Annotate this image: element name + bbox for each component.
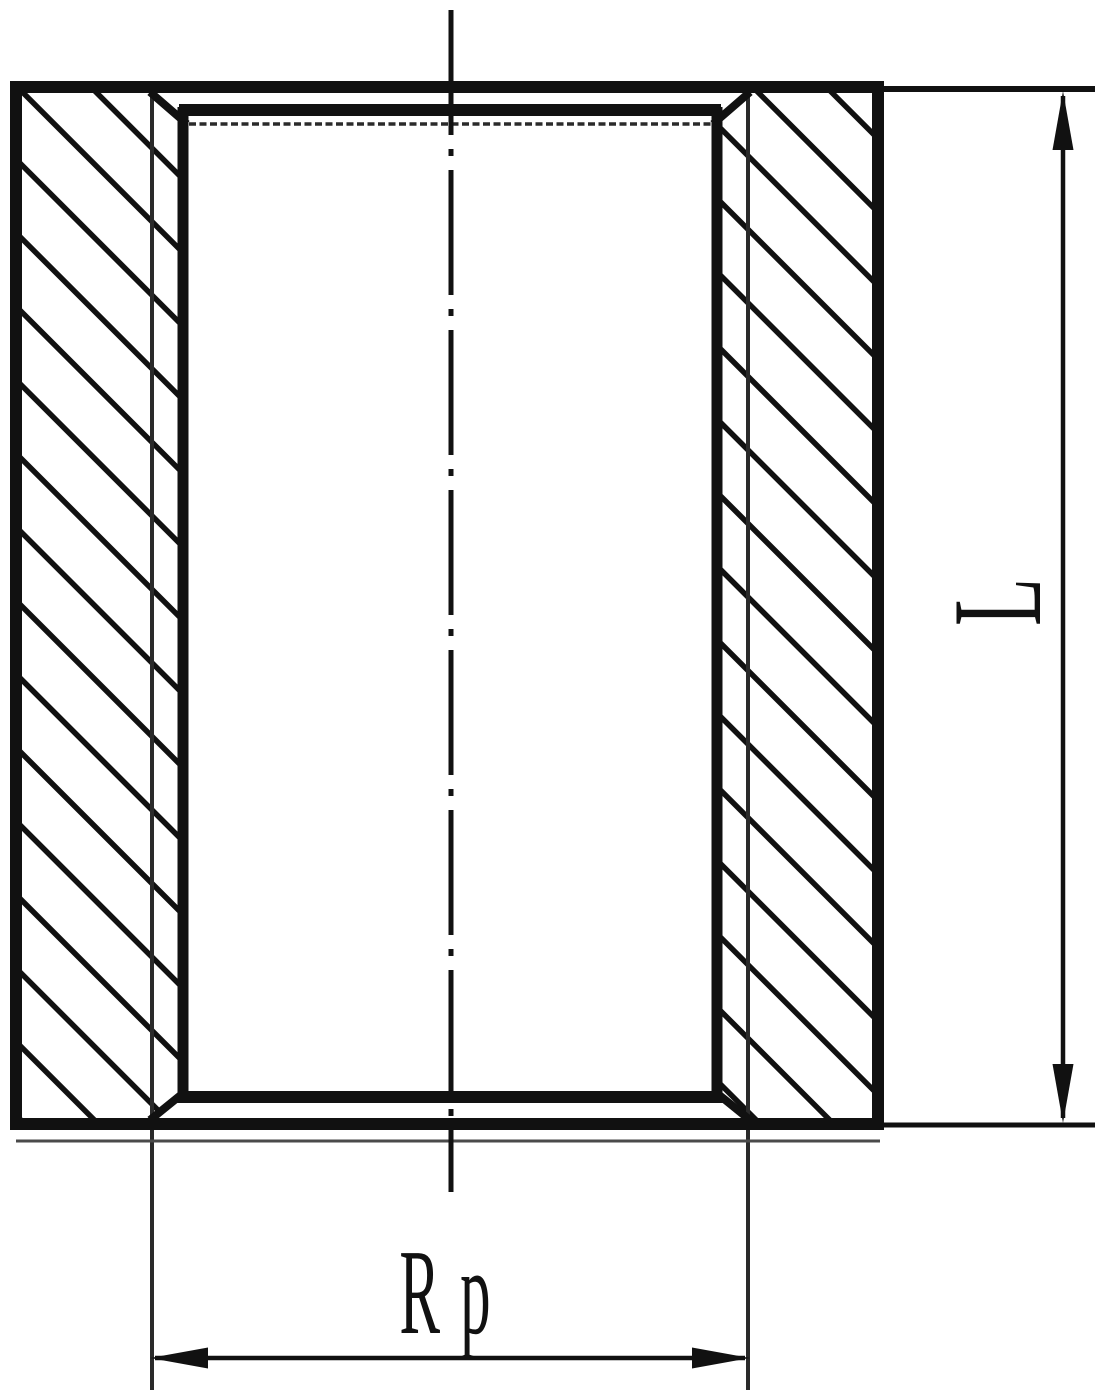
dim-l-arrow-top (1053, 91, 1074, 150)
dim-rp-arrow-left (150, 1348, 208, 1369)
dim-l-arrow-bottom (1053, 1064, 1074, 1123)
right-wall-hatch (723, 93, 873, 1118)
dim-rp-arrow-right (692, 1348, 750, 1369)
left-wall-hatch (22, 93, 178, 1118)
dim-l-label: L (927, 578, 1068, 626)
drawing-canvas: L Rp (0, 0, 1113, 1400)
dim-rp-label: Rp (399, 1224, 510, 1359)
section-drawing: L Rp (0, 0, 1113, 1400)
